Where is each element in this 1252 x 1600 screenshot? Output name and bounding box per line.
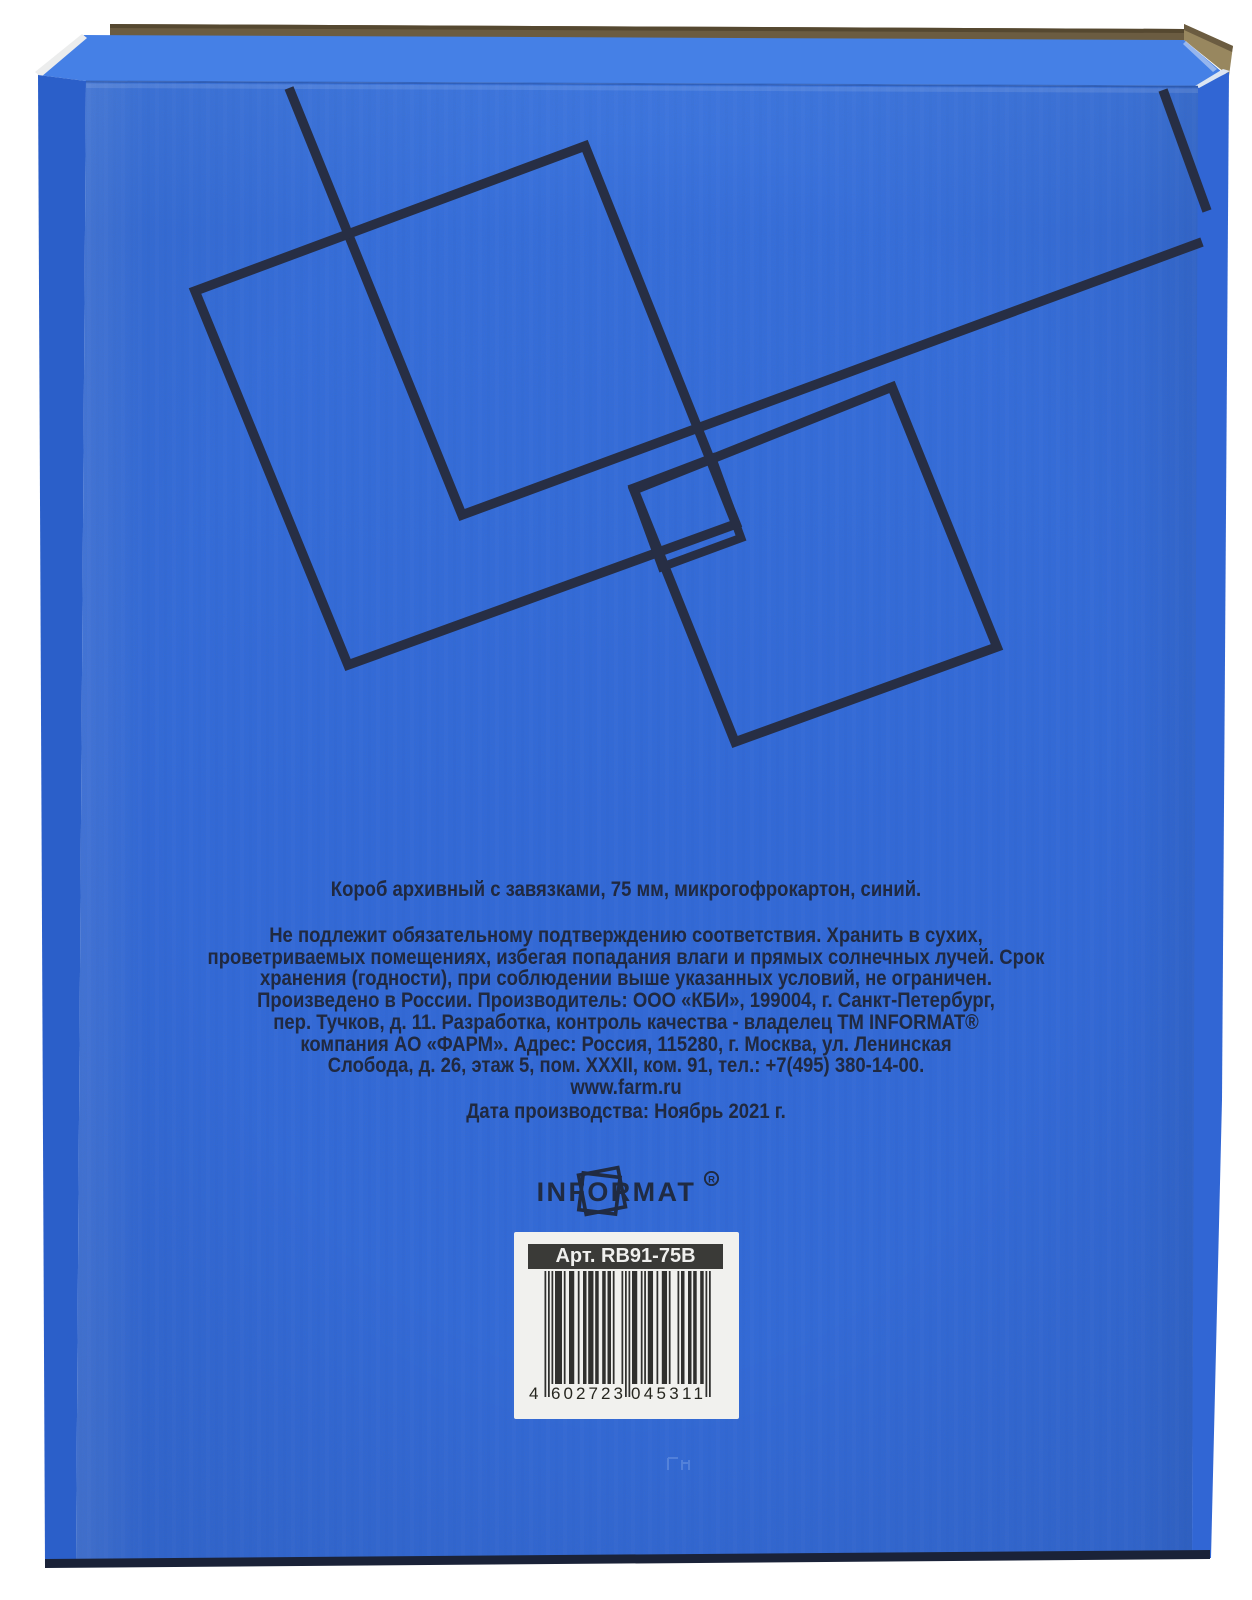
svg-text:045311: 045311 — [631, 1384, 703, 1403]
svg-text:4: 4 — [529, 1384, 538, 1403]
svg-text:602723: 602723 — [551, 1384, 623, 1403]
